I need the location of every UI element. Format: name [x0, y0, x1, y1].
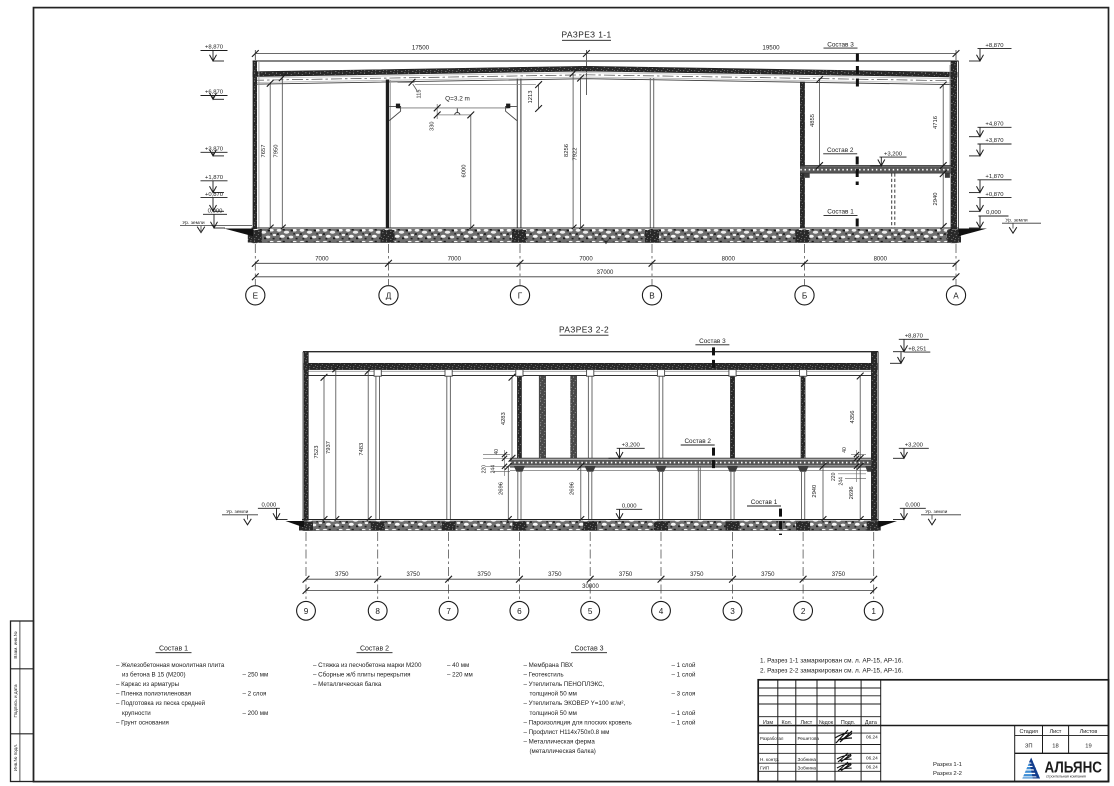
svg-text:8256: 8256 — [564, 144, 570, 157]
svg-text:Дата: Дата — [865, 720, 877, 726]
svg-text:+3,870: +3,870 — [985, 138, 1004, 144]
svg-text:0,000: 0,000 — [986, 210, 1001, 216]
svg-text:7937: 7937 — [326, 441, 332, 454]
svg-text:толщиной 50 мм: толщиной 50 мм — [530, 691, 577, 698]
svg-text:8000: 8000 — [722, 256, 736, 262]
svg-text:2696: 2696 — [849, 486, 855, 499]
svg-text:А: А — [953, 291, 959, 300]
svg-text:+1,870: +1,870 — [985, 174, 1004, 180]
svg-text:– Грунт основания: – Грунт основания — [116, 719, 169, 726]
svg-text:Состав 3: Состав 3 — [699, 338, 726, 345]
svg-text:– Подготовка из песка средней: – Подготовка из песка средней — [116, 700, 206, 707]
svg-text:18: 18 — [1052, 743, 1058, 749]
svg-text:Состав 2: Состав 2 — [684, 438, 711, 445]
svg-text:7000: 7000 — [315, 256, 329, 262]
svg-text:+4,870: +4,870 — [985, 122, 1004, 128]
svg-text:1213: 1213 — [528, 91, 534, 104]
svg-text:Стадия: Стадия — [1020, 729, 1038, 735]
svg-text:4283: 4283 — [501, 412, 507, 425]
svg-text:5: 5 — [588, 607, 593, 616]
svg-text:19500: 19500 — [762, 45, 780, 52]
svg-text:– Утеплитель ПЕНОПЛЭКС,: – Утеплитель ПЕНОПЛЭКС, — [524, 681, 605, 688]
svg-text:Зобнина: Зобнина — [798, 766, 817, 771]
svg-text:06.24: 06.24 — [866, 764, 878, 769]
svg-text:3750: 3750 — [548, 572, 562, 578]
svg-text:4855: 4855 — [810, 114, 816, 127]
svg-text:6000: 6000 — [461, 165, 467, 178]
svg-text:40: 40 — [494, 449, 500, 455]
svg-text:– 1 слой: – 1 слой — [672, 671, 697, 678]
svg-text:3750: 3750 — [832, 572, 846, 578]
svg-text:Б: Б — [802, 291, 807, 300]
svg-text:В: В — [649, 291, 655, 300]
svg-text:Инв.№ подл.: Инв.№ подл. — [13, 744, 18, 771]
svg-text:3750: 3750 — [406, 572, 420, 578]
svg-text:Разработал: Разработал — [760, 736, 784, 741]
svg-text:Состав 3: Состав 3 — [827, 41, 854, 48]
svg-text:0,000: 0,000 — [208, 209, 223, 215]
svg-text:4716: 4716 — [933, 116, 939, 129]
svg-text:244: 244 — [839, 477, 845, 486]
svg-text:толщиной 50 мм: толщиной 50 мм — [530, 710, 577, 717]
svg-text:7950: 7950 — [273, 145, 279, 158]
svg-text:Н. контр.: Н. контр. — [760, 757, 779, 762]
svg-text:30000: 30000 — [582, 584, 599, 590]
svg-text:Д: Д — [386, 291, 392, 300]
svg-text:3750: 3750 — [477, 572, 491, 578]
svg-text:+6,870: +6,870 — [205, 90, 224, 96]
svg-text:06.24: 06.24 — [866, 735, 878, 740]
svg-text:06.24: 06.24 — [866, 755, 878, 760]
svg-text:+3,200: +3,200 — [905, 443, 924, 449]
svg-text:Состав 1: Состав 1 — [159, 646, 188, 653]
svg-text:крупности: крупности — [122, 710, 151, 717]
svg-text:– 40 мм: – 40 мм — [447, 662, 469, 669]
svg-text:0,000: 0,000 — [622, 504, 637, 510]
svg-text:+8,870: +8,870 — [205, 45, 224, 51]
svg-text:+8,870: +8,870 — [905, 334, 924, 340]
svg-text:– 220 мм: – 220 мм — [447, 671, 473, 678]
svg-text:– Каркас из арматуры: – Каркас из арматуры — [116, 681, 180, 688]
svg-text:Ур. земли: Ур. земли — [182, 220, 204, 226]
svg-text:1: 1 — [871, 607, 876, 616]
svg-text:2: 2 — [801, 607, 806, 616]
svg-text:Состав 2: Состав 2 — [827, 147, 854, 154]
svg-text:330: 330 — [429, 122, 435, 131]
svg-text:3750: 3750 — [761, 572, 775, 578]
svg-text:40: 40 — [842, 447, 848, 453]
svg-text:ГИП: ГИП — [760, 766, 769, 771]
svg-text:3750: 3750 — [335, 572, 349, 578]
svg-text:Состав 1: Состав 1 — [751, 499, 778, 506]
svg-text:+3,200: +3,200 — [622, 443, 641, 449]
svg-text:Ур. земли: Ур. земли — [1005, 217, 1027, 223]
svg-text:8: 8 — [375, 607, 380, 616]
svg-text:3750: 3750 — [619, 572, 633, 578]
svg-text:19: 19 — [1085, 743, 1091, 749]
svg-text:2. Разрез 2-2 замаркирован см.: 2. Разрез 2-2 замаркирован см. л. АР-15,… — [760, 667, 903, 674]
svg-text:– 3 слоя: – 3 слоя — [672, 691, 696, 698]
svg-text:– 1 слой: – 1 слой — [672, 710, 697, 717]
svg-text:3: 3 — [730, 607, 735, 616]
svg-text:7922: 7922 — [573, 148, 579, 161]
svg-text:+8,870: +8,870 — [985, 43, 1004, 49]
svg-text:0,000: 0,000 — [905, 503, 920, 509]
svg-text:– 250 мм: – 250 мм — [243, 671, 269, 678]
svg-text:2696: 2696 — [570, 482, 576, 495]
svg-text:7657: 7657 — [261, 145, 267, 158]
svg-text:Г: Г — [518, 291, 523, 300]
svg-text:2940: 2940 — [812, 485, 818, 498]
svg-text:Состав 3: Состав 3 — [574, 646, 603, 653]
svg-text:– Геотекстиль: – Геотекстиль — [524, 671, 564, 678]
svg-text:7523: 7523 — [314, 446, 320, 459]
svg-text:Листов: Листов — [1080, 729, 1098, 735]
svg-text:220: 220 — [831, 472, 837, 481]
svg-text:– Мембрана ПВХ: – Мембрана ПВХ — [524, 662, 573, 669]
svg-text:– 2 слоя: – 2 слоя — [243, 691, 267, 698]
svg-text:4: 4 — [659, 607, 664, 616]
svg-text:– Стяжка из песчобетона марки: – Стяжка из песчобетона марки М200 — [313, 662, 422, 669]
svg-text:Изм: Изм — [763, 720, 773, 726]
svg-text:9: 9 — [304, 607, 309, 616]
svg-text:115: 115 — [416, 90, 422, 99]
svg-text:из бетона В 15 (М200): из бетона В 15 (М200) — [122, 671, 186, 678]
svg-text:– Утеплитель ЭКОВЕР Y=100 кг/м: – Утеплитель ЭКОВЕР Y=100 кг/м², — [524, 700, 626, 707]
svg-text:0,000: 0,000 — [262, 503, 277, 509]
svg-text:6: 6 — [517, 607, 522, 616]
svg-text:220: 220 — [481, 465, 487, 474]
svg-text:Лист: Лист — [1050, 729, 1062, 735]
svg-text:Е: Е — [253, 291, 259, 300]
svg-text:Разрез 1-1: Разрез 1-1 — [933, 762, 962, 768]
svg-text:Q=3.2 m: Q=3.2 m — [445, 96, 470, 103]
svg-text:8000: 8000 — [874, 256, 888, 262]
svg-text:– Сборные ж/б плиты перекрытия: – Сборные ж/б плиты перекрытия — [313, 671, 411, 678]
svg-text:Подп.: Подп. — [841, 720, 855, 726]
svg-text:– Профлист Н114х750х0.8 мм: – Профлист Н114х750х0.8 мм — [524, 729, 610, 736]
svg-text:37000: 37000 — [597, 270, 614, 276]
svg-text:РАЗРЕЗ 2-2: РАЗРЕЗ 2-2 — [559, 324, 609, 334]
svg-text:№док: №док — [819, 720, 834, 726]
svg-text:Ур. земли: Ур. земли — [226, 509, 248, 515]
svg-text:Взам. инв.№: Взам. инв.№ — [13, 631, 18, 658]
svg-text:7483: 7483 — [359, 443, 365, 456]
svg-text:Кол.: Кол. — [781, 720, 792, 726]
svg-text:– 1 слой: – 1 слой — [672, 719, 697, 726]
svg-text:– Металлическая ферма: – Металлическая ферма — [524, 739, 596, 746]
svg-text:строительная компания: строительная компания — [1046, 775, 1086, 779]
svg-text:+0,870: +0,870 — [985, 192, 1004, 198]
svg-text:– Пароизоляция для плоских кро: – Пароизоляция для плоских кровель — [524, 719, 632, 726]
svg-text:2940: 2940 — [933, 193, 939, 206]
svg-text:+3,200: +3,200 — [884, 151, 903, 157]
svg-text:17500: 17500 — [412, 45, 430, 52]
svg-text:244: 244 — [490, 465, 496, 474]
svg-text:+0,870: +0,870 — [205, 192, 224, 198]
svg-text:Состав 2: Состав 2 — [360, 646, 389, 653]
svg-text:– Пленка полиэтиленовая: – Пленка полиэтиленовая — [116, 691, 191, 698]
svg-text:Лист: Лист — [801, 720, 813, 726]
svg-text:ЗП: ЗП — [1025, 743, 1033, 749]
svg-text:7000: 7000 — [579, 256, 593, 262]
svg-text:(металлическая балка): (металлическая балка) — [530, 748, 596, 755]
svg-text:Ур. земли: Ур. земли — [925, 509, 947, 515]
svg-text:– Металлическая балка: – Металлическая балка — [313, 681, 382, 688]
svg-text:– 1 слой: – 1 слой — [672, 662, 697, 669]
svg-text:РАЗРЕЗ 1-1: РАЗРЕЗ 1-1 — [561, 30, 611, 40]
svg-text:– Железобетонная монолитная п: – Железобетонная монолитная плита — [116, 662, 225, 669]
svg-text:Состав 1: Состав 1 — [827, 209, 854, 216]
svg-text:3750: 3750 — [690, 572, 704, 578]
svg-text:7000: 7000 — [448, 256, 462, 262]
svg-text:Подпись и дата: Подпись и дата — [13, 684, 18, 717]
svg-text:Решетова: Решетова — [798, 736, 820, 741]
svg-text:+8,251: +8,251 — [908, 346, 926, 352]
svg-text:Зобнина: Зобнина — [798, 757, 817, 762]
svg-text:4356: 4356 — [850, 411, 856, 424]
svg-text:+1,870: +1,870 — [205, 175, 224, 181]
svg-text:7: 7 — [446, 607, 451, 616]
svg-text:– 200 мм: – 200 мм — [243, 710, 269, 717]
svg-text:+3,870: +3,870 — [205, 147, 224, 153]
svg-text:1. Разрез 1-1 замаркирован см.: 1. Разрез 1-1 замаркирован см. л. АР-15,… — [760, 657, 903, 664]
svg-text:Разрез 2-2: Разрез 2-2 — [933, 771, 962, 777]
svg-text:2696: 2696 — [499, 482, 505, 495]
